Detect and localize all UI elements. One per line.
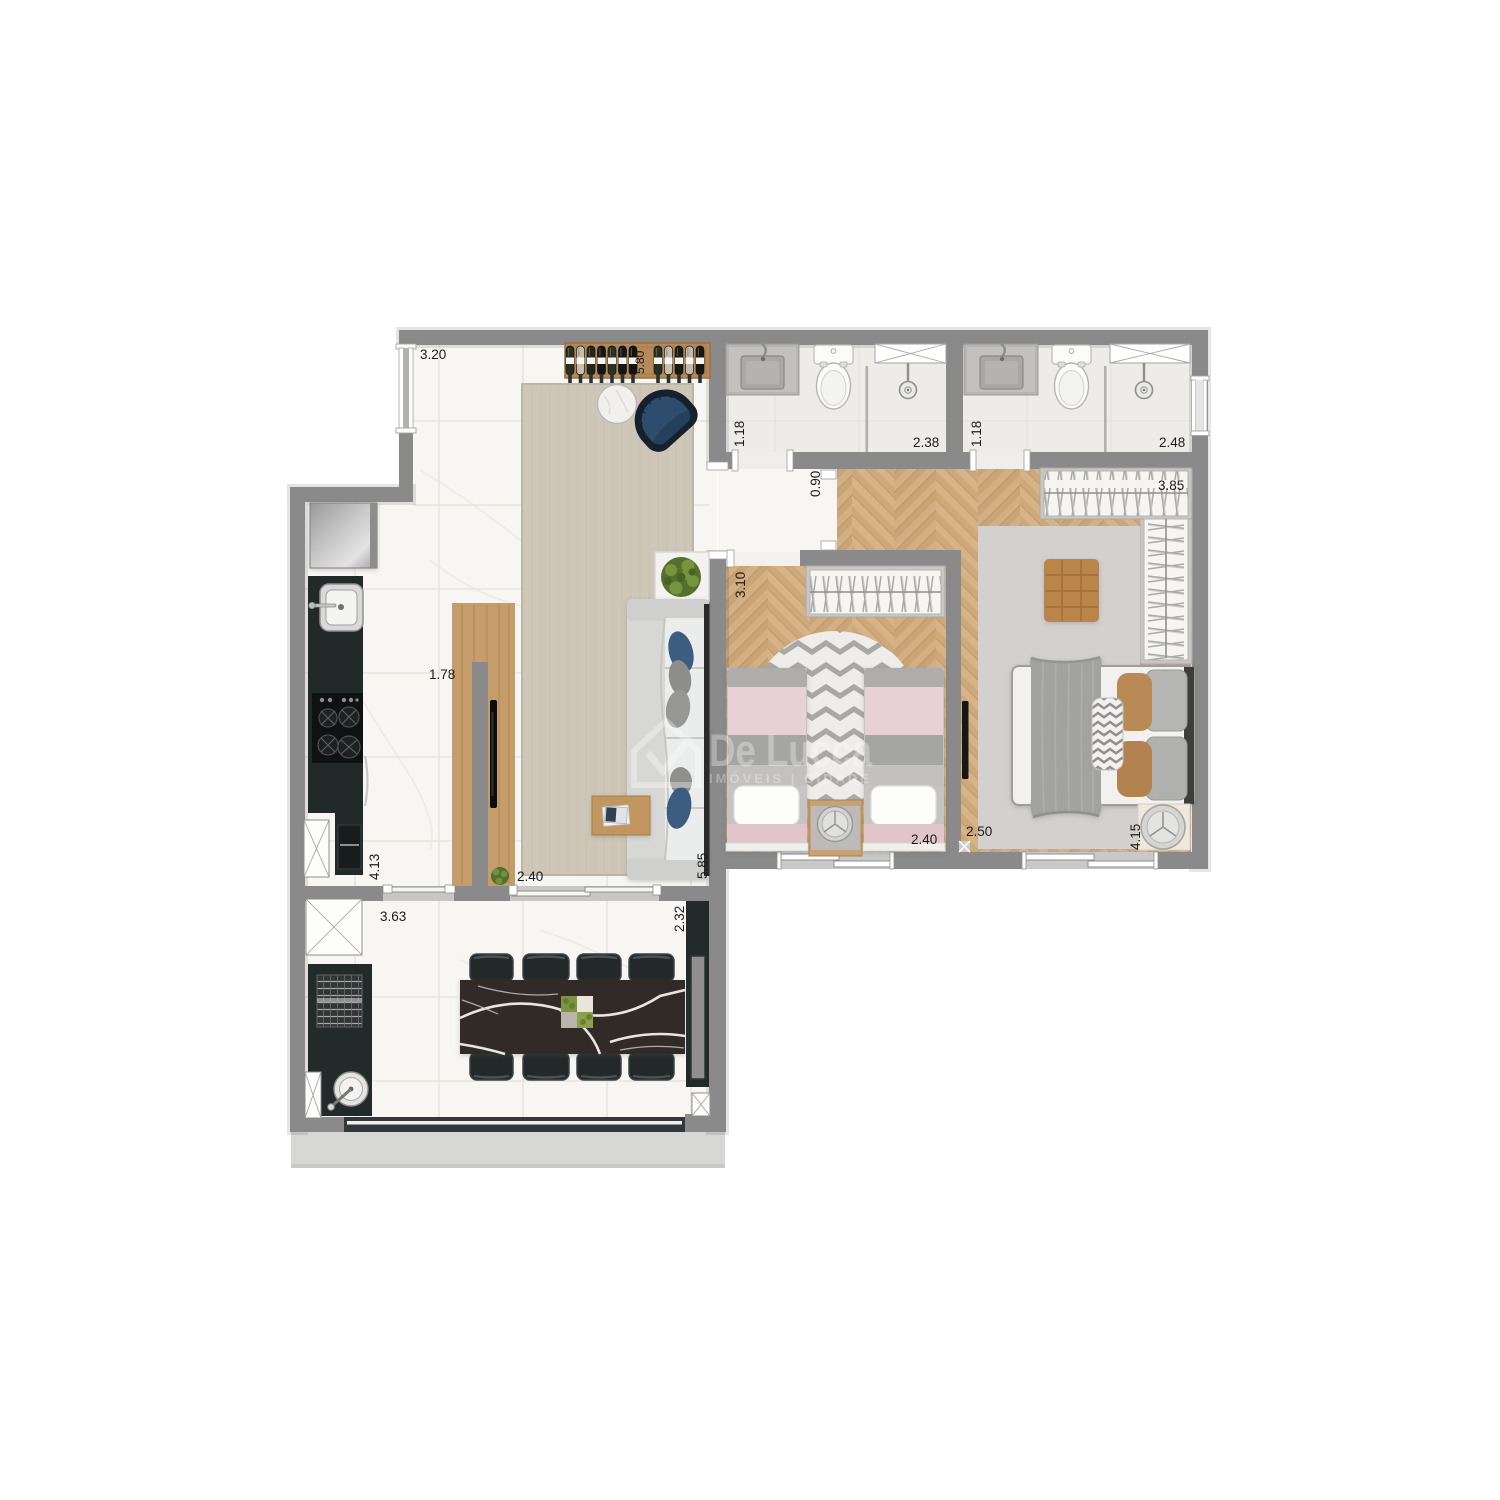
svg-text:4.13: 4.13 xyxy=(367,854,382,880)
svg-text:2.50: 2.50 xyxy=(966,824,992,839)
svg-text:2.40: 2.40 xyxy=(517,869,543,884)
svg-text:De Lucca: De Lucca xyxy=(709,725,873,776)
svg-text:5.85: 5.85 xyxy=(695,853,710,879)
svg-text:3.20: 3.20 xyxy=(420,347,446,362)
svg-text:4.15: 4.15 xyxy=(1128,824,1143,850)
svg-text:2.32: 2.32 xyxy=(672,906,687,932)
svg-text:5.80: 5.80 xyxy=(633,350,647,374)
svg-text:2.48: 2.48 xyxy=(1159,435,1185,450)
svg-text:1.18: 1.18 xyxy=(969,421,984,447)
svg-text:2.40: 2.40 xyxy=(911,832,937,847)
svg-text:3.10: 3.10 xyxy=(733,572,748,598)
svg-text:1.18: 1.18 xyxy=(732,421,747,447)
svg-text:2.38: 2.38 xyxy=(913,435,939,450)
svg-text:0.90: 0.90 xyxy=(808,471,823,497)
svg-text:IMÓVEIS | CIDADE: IMÓVEIS | CIDADE xyxy=(709,771,872,786)
svg-text:1.78: 1.78 xyxy=(429,667,455,682)
svg-text:3.85: 3.85 xyxy=(1158,478,1184,493)
svg-text:3.63: 3.63 xyxy=(380,909,406,924)
